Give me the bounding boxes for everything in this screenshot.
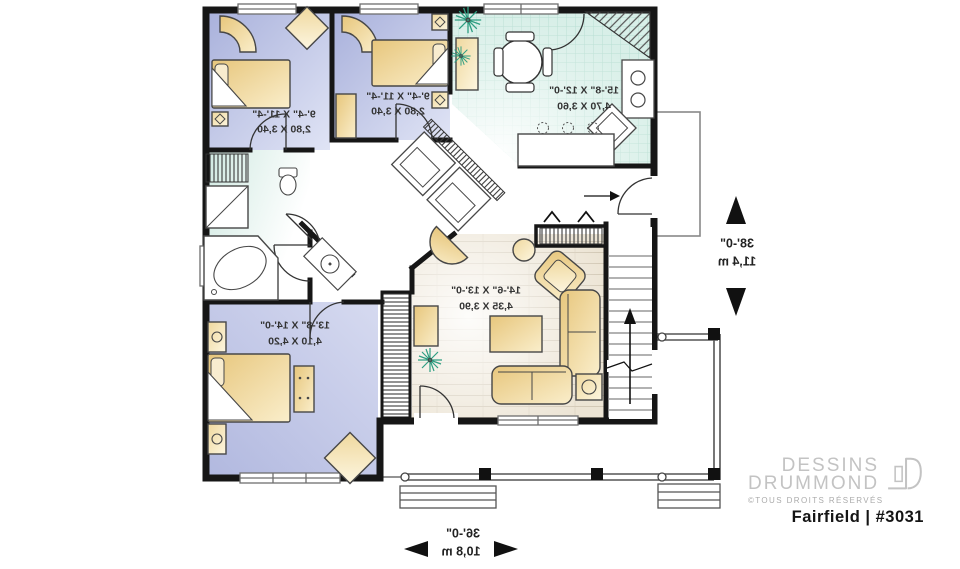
toilet (279, 168, 297, 195)
window (238, 4, 296, 14)
branding-block: DESSINS DRUMMOND ©TOUS DROITS RÉSERVÉS F… (748, 450, 924, 527)
width-imperial: 36'-0" (446, 526, 480, 540)
window (360, 4, 418, 14)
sofa (560, 290, 600, 376)
front-stoop (656, 112, 700, 236)
width-dimension: 36'-0" 10,8 m (404, 526, 518, 558)
bedroom-1-dim-metric: 2,80 X 3,40 (257, 124, 311, 136)
arrow-up-icon (726, 196, 746, 224)
depth-dimension: 38'-0" 11,4 m (718, 196, 756, 316)
master-dim-imperial: 13'-8" X 14'-0" (260, 320, 330, 332)
loveseat (492, 366, 572, 404)
bedroom-1-dim-imperial: 9'-4" X 11'-4" (252, 109, 315, 121)
depth-metric: 11,4 m (718, 254, 756, 268)
arrow-down-icon (726, 288, 746, 316)
arrow-left-icon (404, 541, 428, 557)
range (622, 60, 654, 118)
staircase (607, 227, 653, 419)
living-dim-imperial: 14'-6" X 13'-0" (451, 285, 521, 297)
nightstand (208, 322, 226, 352)
dresser (336, 94, 356, 138)
master-dim-metric: 4,10 X 4,20 (268, 336, 322, 348)
veranda-rail-bottom (404, 474, 714, 480)
floor-plan-image: 9'-4" X 11'-4" 2,80 X 3,40 9'-4" X 11'-4… (0, 0, 960, 569)
living-dim-metric: 4,35 X 3,90 (459, 301, 513, 313)
logo-wordmark: DESSINS DRUMMOND (748, 457, 879, 494)
entry-arrow-icon (584, 191, 620, 201)
arrow-right-icon (494, 541, 518, 557)
entry-closet (540, 228, 602, 244)
bedroom-2-dim-metric: 2,80 X 3,40 (371, 106, 425, 118)
steps (400, 484, 720, 508)
island (518, 134, 614, 166)
bedroom-2-dim-imperial: 9'-4" X 11'-4" (366, 91, 429, 103)
kitchen-dim-metric: 4,70 X 3,60 (557, 101, 611, 113)
window (484, 4, 558, 14)
coffee-table (490, 316, 542, 352)
width-metric: 10,8 m (442, 544, 481, 558)
depth-imperial: 38'-0" (720, 236, 754, 250)
window (498, 416, 578, 425)
drummond-d-logo-icon (885, 450, 924, 494)
copyright-text: ©TOUS DROITS RÉSERVÉS (748, 496, 924, 505)
cabinet (456, 38, 478, 90)
nightstand (208, 424, 226, 454)
plan-model-label: Fairfield | #3031 (748, 508, 924, 527)
closet-chevrons (544, 212, 594, 222)
veranda-rail-right (714, 334, 720, 480)
kitchen-dim-imperial: 15'-8" X 12'-0" (549, 85, 619, 97)
dresser (294, 366, 314, 412)
tv-cabinet (414, 306, 438, 346)
hall-closet (382, 292, 410, 418)
side-table (576, 374, 602, 400)
dining-table (498, 40, 542, 84)
linen-closet (206, 154, 248, 182)
window (240, 473, 340, 483)
logo-line2: DRUMMOND (748, 475, 879, 494)
round-table (513, 239, 535, 261)
